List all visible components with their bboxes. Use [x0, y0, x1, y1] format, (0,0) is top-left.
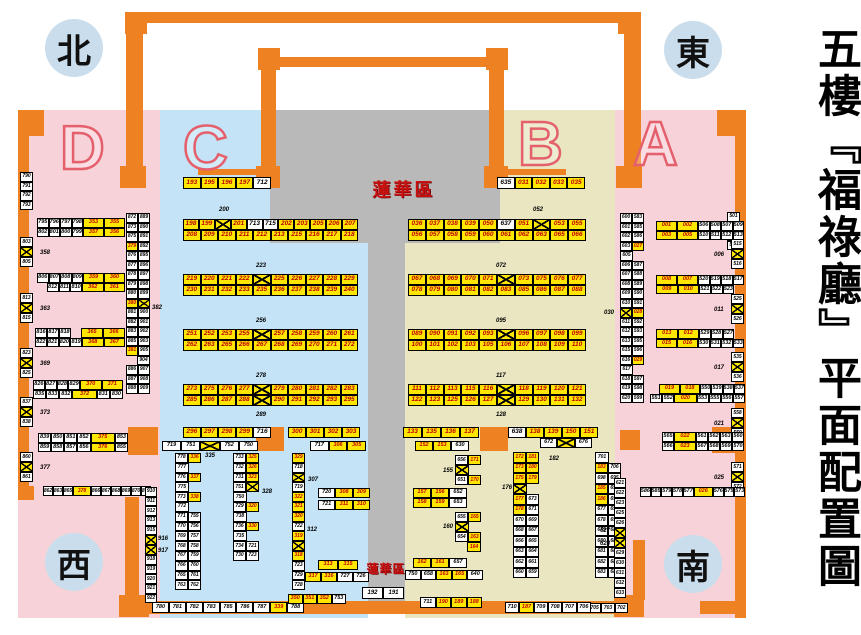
service-cell: 715 [263, 219, 279, 230]
service-cell: 811 [59, 283, 71, 293]
service-cell: 875 [126, 232, 138, 242]
service-cell: 664 [526, 547, 539, 558]
booth-cell: 156 [431, 488, 449, 498]
booth-cell: 069 [444, 274, 462, 285]
c-row-8a: 313315 [318, 560, 358, 570]
booth-cell: 180 [526, 463, 539, 474]
service-cell: 561 [696, 432, 708, 442]
b-block-3: 0890900910920930960970980991001011021031… [408, 329, 586, 351]
booth-cell: 365 [81, 328, 103, 338]
service-cell: 623 [614, 498, 626, 508]
service-cell: 579 [661, 487, 672, 497]
d-x-5: 860861 [20, 452, 33, 482]
booth-cell: 232 [218, 285, 236, 296]
booth-cell: 152 [415, 441, 433, 451]
service-cell: 797 [60, 218, 72, 228]
service-cell: 553 [697, 394, 709, 404]
booth-cell: 371 [102, 380, 124, 390]
service-cell: 907 [138, 365, 150, 375]
service-cell: 753 [332, 594, 347, 604]
service-cell: 807 [49, 273, 61, 283]
booth-cell: 229 [341, 274, 359, 285]
service-cell: 552 [662, 394, 674, 404]
b-strip-top: 635031032033035 [497, 177, 585, 189]
booth-cell: 177 [513, 494, 526, 505]
service-cell: 585 [632, 223, 644, 233]
booth-cell: 108 [533, 340, 551, 351]
d-x-4: 837838 [20, 397, 33, 427]
booth-cell: 218 [341, 230, 359, 241]
booth-cell: 120 [550, 384, 568, 395]
service-cell: 586 [632, 232, 644, 242]
booth-cell: 320 [292, 512, 305, 522]
booth-cell: 066 [568, 230, 586, 241]
a-x-2: 525526 [731, 294, 744, 324]
service-cell: 913 [145, 516, 157, 526]
service-cell: 735 [233, 531, 247, 541]
service-cell: 771 [175, 512, 188, 522]
booth-group-label: 223 [256, 263, 266, 269]
booth-cell: 231 [201, 285, 219, 296]
service-cell: 777 [175, 463, 189, 473]
service-cell: 557 [733, 394, 745, 404]
service-cell: 673 [526, 494, 539, 505]
service-cell: 709 [534, 602, 548, 613]
booth-cell: 297 [201, 427, 219, 438]
service-cell: 887 [126, 375, 138, 385]
booth-group-label: 328 [262, 489, 272, 495]
service-cell: 822 [35, 338, 47, 348]
booth-group-label: 155 [443, 468, 453, 474]
booth-cell: 276 [218, 384, 236, 395]
reserved-x-cell [614, 538, 626, 548]
booth-cell: 285 [183, 395, 201, 406]
booth-cell: 317 [305, 572, 321, 582]
booth-cell: 039 [461, 219, 479, 230]
booth-group-label: 025 [714, 475, 724, 481]
service-cell: 667 [526, 526, 539, 537]
service-cell: 755 [188, 512, 201, 522]
service-cell: 801 [49, 228, 61, 238]
reserved-x-cell [731, 362, 744, 372]
booth-cell: 236 [271, 285, 289, 296]
service-cell: 526 [731, 314, 744, 324]
service-cell: 860 [20, 452, 33, 462]
booth-cell: 010 [678, 285, 700, 295]
booth-cell: 089 [408, 329, 426, 340]
booth-cell: 193 [183, 177, 201, 189]
service-cell: 531 [710, 339, 722, 349]
booth-cell: 337 [188, 473, 201, 483]
booth-cell: 130 [533, 395, 551, 406]
service-cell: 562 [708, 432, 720, 442]
reserved-x-cell [253, 329, 271, 340]
service-cell: 721 [318, 500, 335, 510]
service-cell: 600 [620, 213, 632, 223]
service-cell: 830 [110, 390, 123, 400]
service-cell: 659 [526, 568, 539, 579]
booth-cell: 309 [353, 488, 370, 498]
service-cell: 565 [662, 432, 674, 442]
booth-cell: 053 [550, 219, 568, 230]
d-group-3: 816817818365366822821820819368367 [35, 328, 125, 347]
service-cell: 911 [145, 497, 157, 507]
booth-group-label: 373 [40, 410, 50, 416]
booth-cell: 178 [513, 505, 526, 516]
booth-cell: 336 [188, 453, 201, 463]
b-group-2: 157156652158159653 [413, 488, 467, 508]
service-cell: 795 [37, 218, 49, 228]
c-strip-top: 193195196197712 [183, 177, 271, 189]
booth-cell: 313 [318, 560, 338, 570]
service-cell: 918 [145, 555, 157, 565]
service-cell: 669 [526, 515, 539, 526]
service-cell: 869 [121, 486, 131, 496]
a-col-bottom-right: 621622623625626629630631632633 [614, 478, 626, 598]
reserved-x-cell [20, 303, 33, 313]
service-cell: 567 [696, 442, 708, 452]
booth-cell: 279 [271, 384, 289, 395]
booth-cell: 206 [326, 219, 342, 230]
booth-cell: 065 [550, 230, 568, 241]
booth-group-label: 363 [40, 306, 50, 312]
reserved-x-cell [246, 482, 259, 492]
service-cell: 791 [20, 182, 33, 192]
service-cell: 521 [699, 285, 711, 295]
service-cell: 762 [188, 580, 201, 590]
booth-cell: 292 [306, 395, 324, 406]
booth-cell: 225 [271, 274, 289, 285]
service-cell: 780 [152, 602, 169, 613]
booth-cell: 299 [236, 427, 254, 438]
booth-cell: 338 [188, 492, 201, 502]
booth-group-label: 117 [496, 373, 506, 379]
c-col-right: 329718719322321320722319318723729728 [292, 453, 305, 590]
booth-cell: 123 [426, 395, 444, 406]
c-block-4: 2732752762772792802812822832852862872882… [183, 384, 358, 406]
service-cell: 806 [37, 273, 49, 283]
service-cell: 589 [632, 280, 644, 290]
booth-cell: 059 [461, 230, 479, 241]
booth-cell: 277 [236, 384, 254, 395]
booth-cell: 132 [568, 395, 586, 406]
booth-group-label: 382 [152, 305, 162, 311]
booth-cell: 026 [694, 487, 713, 497]
booth-cell: 301 [306, 427, 324, 438]
booth-cell: 259 [306, 329, 324, 340]
booth-cell: 185 [595, 484, 608, 495]
service-cell: 862 [43, 486, 53, 496]
reserved-x-cell [533, 219, 551, 230]
service-cell: 516 [731, 259, 744, 269]
a-group-4: 019018550539538537551552020553555556557 [650, 384, 745, 403]
service-cell: 619 [620, 384, 632, 394]
service-cell: 734 [233, 541, 246, 551]
service-cell: 560 [732, 432, 744, 442]
booth-cell: 068 [426, 274, 444, 285]
service-cell: 750 [239, 441, 258, 451]
service-cell: 889 [138, 213, 150, 223]
service-cell: 785 [220, 602, 237, 613]
booth-cell: 287 [218, 395, 236, 406]
booth-cell: 179 [526, 473, 539, 484]
service-cell: 610 [620, 299, 632, 309]
d-x-2: 813815 [20, 293, 33, 323]
booth-cell: 015 [656, 339, 677, 349]
floor-plan-page: D C B A 蓮華區 蓮華區 北 東 西 南 五樓『福祿廳』平面配置圖 193… [0, 0, 861, 635]
service-cell: 550 [700, 384, 711, 394]
booth-cell: 281 [306, 384, 324, 395]
service-cell: 816 [35, 328, 47, 338]
service-cell: 868 [111, 486, 121, 496]
service-cell: 563 [720, 432, 732, 442]
service-cell: 522 [711, 285, 723, 295]
booth-cell: 153 [433, 441, 451, 451]
service-cell: 532 [721, 339, 733, 349]
service-cell: 523 [723, 285, 735, 295]
service-cell: 608 [620, 280, 632, 290]
booth-cell: 070 [461, 274, 479, 285]
service-cell: 881 [126, 308, 138, 318]
booth-cell: 310 [353, 500, 370, 510]
service-cell: 775 [175, 482, 189, 492]
service-cell: 879 [126, 280, 138, 290]
reserved-x-cell [138, 299, 150, 309]
service-cell: 825 [20, 368, 33, 378]
service-cell: 761 [188, 571, 201, 581]
booth-cell: 165 [468, 512, 481, 522]
service-cell: 826 [33, 380, 45, 390]
booth-cell: 263 [201, 340, 219, 351]
page-title: 五樓『福祿廳』平面配置圖 [813, 26, 857, 628]
booth-cell: 035 [567, 177, 585, 189]
gate-row: 192191 [362, 587, 404, 599]
booth-group-label: 916 [158, 536, 168, 542]
service-cell: 851 [64, 433, 77, 443]
booth-cell: 211 [236, 230, 254, 241]
service-cell: 618 [620, 375, 632, 385]
service-cell: 727 [337, 572, 353, 582]
service-cell: 723 [246, 551, 259, 561]
booth-cell: 272 [341, 340, 359, 351]
service-cell: 722 [292, 522, 305, 532]
a-x-1: 515516 [731, 239, 744, 269]
booth-cell: 323 [246, 473, 259, 483]
booth-cell: 088 [568, 285, 586, 296]
service-cell: 606 [620, 261, 632, 271]
booth-cell: 007 [677, 275, 698, 285]
reserved-x-cell [455, 522, 469, 532]
c-row-7a: 720308309 [318, 488, 370, 498]
service-cell: 617 [620, 365, 633, 375]
booth-cell: 350 [288, 594, 303, 604]
service-cell: 635 [497, 177, 515, 189]
booth-group-label: 335 [205, 453, 215, 459]
reserved-x-cell [20, 358, 33, 368]
a-bottom-row: 586585579578577026576575573 [640, 487, 745, 497]
booth-cell: 101 [426, 340, 444, 351]
service-cell: 920 [145, 574, 157, 584]
service-cell: 662 [513, 557, 526, 568]
service-cell: 882 [126, 318, 138, 328]
service-cell: 640 [467, 570, 483, 580]
service-cell: 738 [233, 512, 247, 522]
service-cell: 703 [601, 603, 614, 613]
booth-cell: 115 [461, 384, 479, 395]
reserved-x-cell [145, 535, 157, 545]
booth-cell: 061 [497, 230, 515, 241]
service-cell: 586 [640, 487, 651, 497]
booth-cell: 269 [288, 340, 306, 351]
booth-cell: 330 [246, 522, 259, 532]
service-cell: 818 [59, 328, 71, 338]
booth-group-label: 182 [549, 456, 559, 462]
b-row-5-left: 133135136137 [403, 427, 479, 438]
service-cell: 652 [449, 488, 467, 498]
booth-cell: 079 [426, 285, 444, 296]
d-x-3: 823825 [20, 348, 33, 378]
booth-cell: 110 [568, 340, 586, 351]
booth-cell: 261 [341, 329, 359, 340]
c-bottom-row-2: 350351352753 [288, 594, 346, 604]
booth-cell: 131 [550, 395, 568, 406]
booth-cell: 315 [338, 560, 358, 570]
booth-cell: 362 [82, 283, 104, 293]
service-cell: 506 [698, 221, 710, 231]
booth-cell: 265 [218, 340, 236, 351]
booth-cell: 031 [515, 177, 533, 189]
service-cell: 558 [731, 408, 744, 418]
booth-cell: 321 [292, 502, 305, 512]
booth-cell: 036 [408, 219, 426, 230]
b-row-182: 672676 [540, 438, 592, 448]
booth-cell: 370 [80, 380, 102, 390]
service-cell: 855 [115, 443, 128, 453]
booth-cell: 029 [632, 356, 644, 366]
booth-cell: 360 [104, 273, 125, 283]
reserved-x-cell [20, 247, 33, 257]
service-cell: 867 [101, 486, 111, 496]
service-cell: 712 [253, 177, 271, 189]
booth-cell: 092 [461, 329, 479, 340]
service-cell: 555 [709, 394, 721, 404]
service-cell: 728 [292, 580, 305, 590]
reserved-x-cell [253, 274, 271, 285]
service-cell: 665 [526, 536, 539, 547]
b-block-1: 0360370380390506370510530550560570580590… [408, 219, 586, 241]
reserved-x-cell [614, 528, 626, 538]
booth-cell: 260 [323, 329, 341, 340]
booth-cell: 213 [271, 230, 289, 241]
service-cell: 578 [672, 487, 683, 497]
booth-cell: 210 [218, 230, 236, 241]
booth-cell: 107 [515, 340, 533, 351]
booth-cell: 267 [253, 340, 271, 351]
service-cell: 613 [620, 337, 632, 347]
booth-cell: 322 [292, 492, 305, 502]
booth-cell: 098 [550, 329, 568, 340]
booth-cell: 205 [310, 219, 326, 230]
service-cell: 808 [60, 273, 72, 283]
service-cell: 897 [138, 270, 150, 280]
service-cell: 566 [662, 442, 674, 452]
c-bottom-row: 780781782783785786787339788 [152, 602, 304, 613]
service-cell: 661 [526, 557, 539, 568]
reserved-x-cell [497, 274, 515, 285]
a-group-5: 565022561562563560566023567568569570 [662, 432, 744, 451]
service-cell: 831 [97, 390, 110, 400]
service-cell: 773 [175, 492, 188, 502]
booth-cell: 190 [436, 597, 452, 608]
booth-cell: 187 [519, 602, 533, 613]
service-cell: 870 [131, 486, 141, 496]
service-cell: 701 [595, 452, 609, 463]
booth-cell: 378 [73, 486, 91, 496]
booth-cell: 339 [270, 602, 287, 613]
d-group-4: 826827828829370371835833832372831830 [33, 380, 123, 399]
booth-cell: 262 [183, 340, 201, 351]
service-cell: 535 [731, 352, 744, 362]
service-cell: 672 [540, 438, 557, 448]
service-cell: 556 [721, 394, 733, 404]
c-row-5-right: 300301302303 [288, 427, 360, 438]
service-cell: 798 [72, 218, 84, 228]
service-cell: 803 [20, 237, 33, 247]
booth-cell: 087 [550, 285, 568, 296]
service-cell: 629 [614, 548, 626, 558]
service-cell: 912 [145, 506, 157, 516]
booth-cell: 196 [218, 177, 236, 189]
booth-cell: 150 [562, 427, 580, 438]
service-cell: 768 [175, 541, 188, 551]
service-cell: 770 [175, 522, 188, 532]
service-cell: 898 [138, 280, 150, 290]
reserved-x-cell [253, 395, 271, 406]
service-cell: 820 [59, 338, 71, 348]
booth-cell: 357 [83, 228, 104, 238]
service-cell: 919 [145, 565, 157, 575]
service-cell: 601 [620, 223, 632, 233]
booth-cell: 099 [568, 329, 586, 340]
booth-cell: 002 [677, 221, 698, 231]
booth-cell: 103 [461, 340, 479, 351]
reserved-x-cell [557, 438, 574, 448]
reserved-x-cell [455, 465, 469, 475]
service-cell: 671 [526, 505, 539, 516]
b-col-2: 655165654163164 [455, 512, 481, 552]
booth-cell: 230 [183, 285, 201, 296]
booth-cell: 009 [656, 285, 678, 295]
booth-cell: 306 [329, 441, 348, 451]
booth-cell: 122 [408, 395, 426, 406]
booth-cell: 325 [246, 453, 259, 463]
service-cell: 721 [246, 541, 259, 551]
booth-cell: 286 [201, 395, 219, 406]
service-cell: 829 [68, 380, 80, 390]
service-cell: 861 [20, 472, 33, 482]
booth-cell: 129 [515, 395, 533, 406]
booth-group-label: 358 [40, 250, 50, 256]
service-cell: 878 [126, 270, 138, 280]
c-row-6-right: 717306305 [310, 441, 366, 451]
booth-cell: 288 [236, 395, 254, 406]
service-cell: 905 [138, 346, 150, 356]
service-cell: 708 [548, 602, 562, 613]
booth-group-label: 030 [604, 310, 614, 316]
service-cell: 702 [615, 603, 628, 613]
service-cell: 786 [236, 602, 253, 613]
service-cell: 630 [614, 558, 626, 568]
